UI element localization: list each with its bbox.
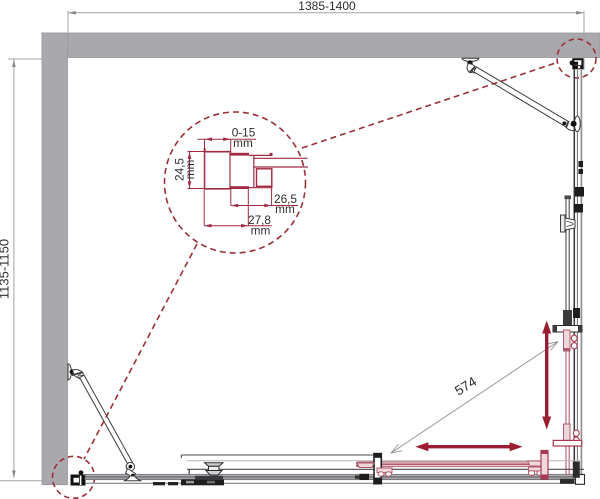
svg-text:mm: mm <box>275 202 295 216</box>
svg-text:mm: mm <box>251 224 271 238</box>
svg-text:mm: mm <box>183 160 197 180</box>
svg-text:mm: mm <box>233 136 253 150</box>
svg-text:1385-1400: 1385-1400 <box>298 0 356 13</box>
svg-text:1135-1150: 1135-1150 <box>0 239 12 299</box>
